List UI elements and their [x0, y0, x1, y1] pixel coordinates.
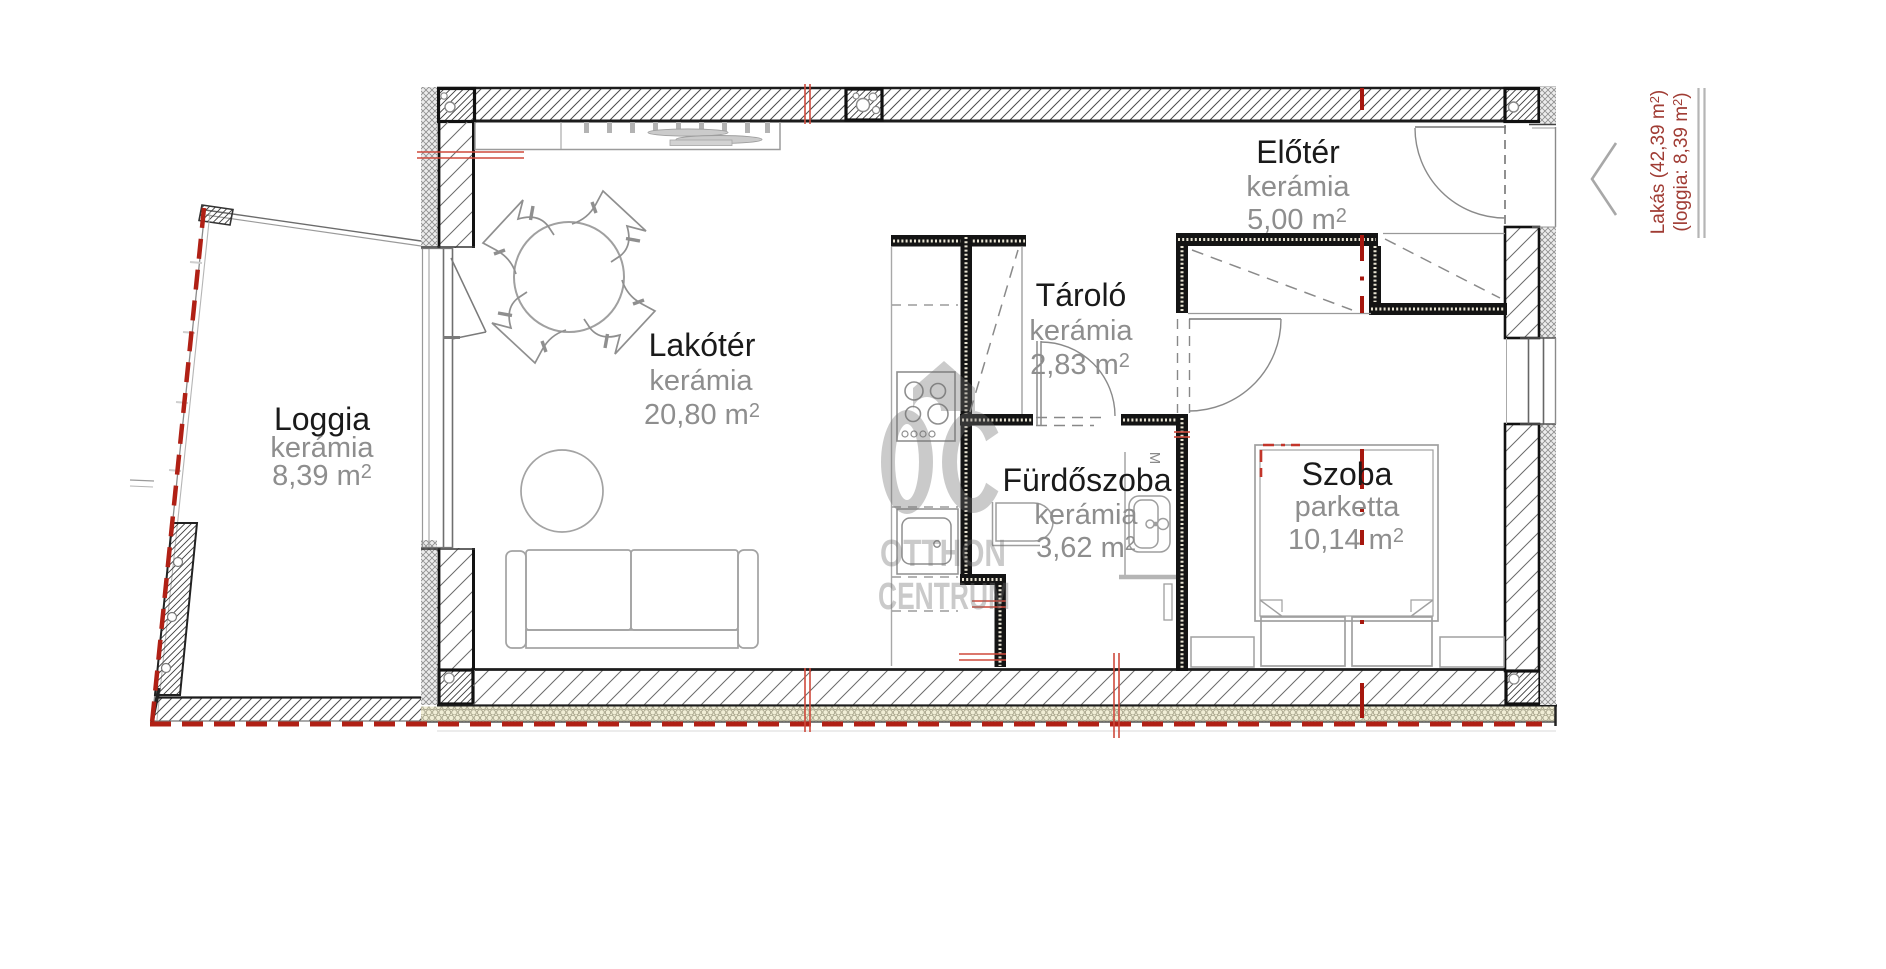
svg-text:OTTHON: OTTHON: [880, 533, 1006, 575]
svg-text:CENTRUM: CENTRUM: [878, 576, 1010, 618]
svg-text:Előtér: Előtér: [1256, 134, 1340, 170]
svg-text:2,83 m2: 2,83 m2: [1030, 349, 1130, 381]
svg-text:3,62 m2: 3,62 m2: [1036, 532, 1136, 564]
svg-text:10,14 m2: 10,14 m2: [1288, 524, 1404, 556]
svg-text:Fürdőszoba: Fürdőszoba: [1003, 462, 1172, 498]
svg-text:20,80 m2: 20,80 m2: [644, 399, 760, 431]
svg-text:Tároló: Tároló: [1036, 277, 1127, 313]
svg-text:Szoba: Szoba: [1302, 456, 1393, 492]
svg-text:kerámia: kerámia: [1034, 499, 1138, 531]
svg-text:kerámia: kerámia: [1246, 171, 1350, 203]
svg-text:kerámia: kerámia: [649, 365, 753, 397]
svg-text:8,39 m2: 8,39 m2: [272, 460, 372, 492]
svg-text:(loggia: 8,39 m2): (loggia: 8,39 m2): [1670, 92, 1692, 231]
svg-text:Lakás (42,39 m2): Lakás (42,39 m2): [1647, 90, 1669, 235]
svg-text:5,00 m2: 5,00 m2: [1247, 204, 1347, 236]
svg-text:kerámia: kerámia: [1029, 315, 1133, 347]
svg-text:Lakótér: Lakótér: [649, 327, 756, 363]
svg-text:parketta: parketta: [1295, 491, 1401, 523]
